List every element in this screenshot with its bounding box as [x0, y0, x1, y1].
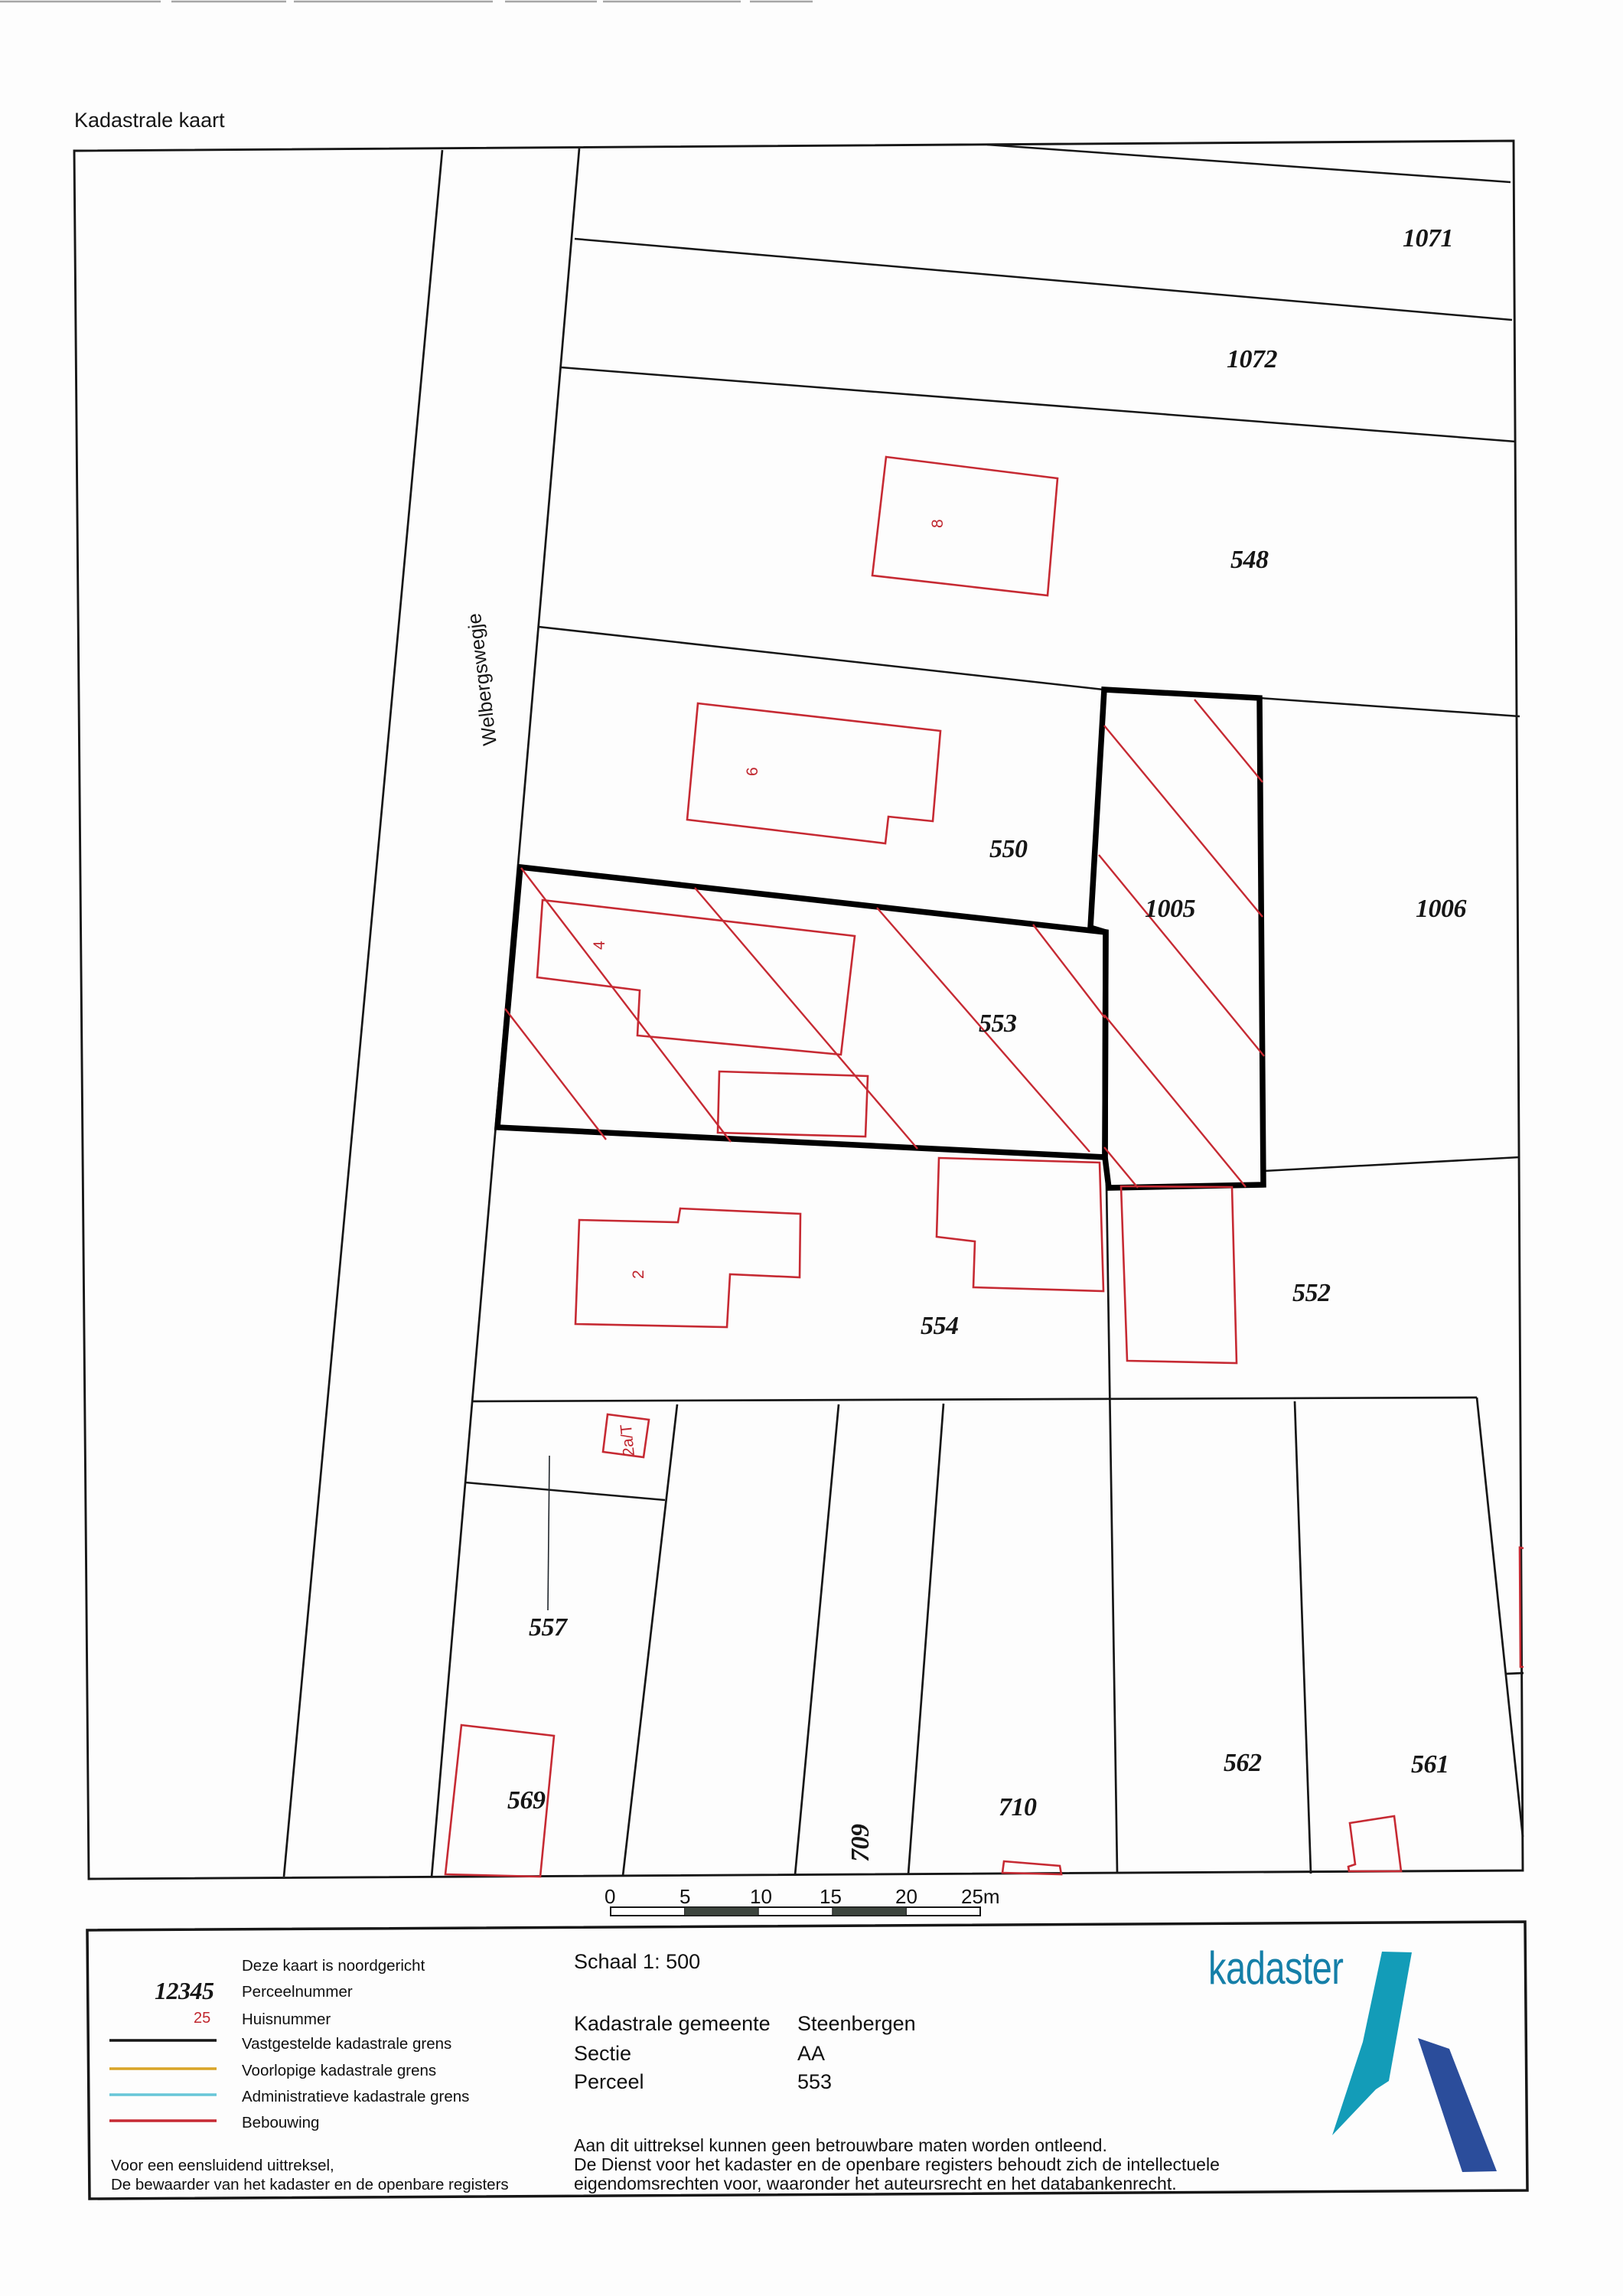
svg-text:Perceelnummer: Perceelnummer [242, 1983, 353, 2001]
svg-text:De Dienst voor het kadaster en: De Dienst voor het kadaster en de openba… [574, 2154, 1220, 2174]
svg-text:2: 2 [630, 1270, 647, 1279]
svg-text:548: 548 [1230, 546, 1269, 574]
svg-text:1005: 1005 [1145, 895, 1196, 923]
svg-text:569: 569 [507, 1786, 546, 1815]
svg-text:Welbergswegje: Welbergswegje [464, 612, 501, 747]
svg-text:kadaster: kadaster [1208, 1943, 1344, 1994]
svg-text:Kadastrale kaart: Kadastrale kaart [74, 109, 225, 132]
svg-text:1072: 1072 [1227, 345, 1278, 373]
svg-text:20: 20 [895, 1885, 917, 1908]
svg-text:Voorlopige kadastrale grens: Voorlopige kadastrale grens [242, 2062, 436, 2079]
svg-text:550: 550 [989, 835, 1028, 863]
svg-text:0: 0 [605, 1885, 615, 1908]
svg-text:4: 4 [591, 941, 608, 950]
svg-text:5: 5 [680, 1885, 690, 1908]
svg-text:De bewaarder van het kadaster: De bewaarder van het kadaster en de open… [111, 2176, 509, 2193]
svg-text:Steenbergen: Steenbergen [797, 2012, 916, 2035]
svg-text:Voor een eensluidend uittrekse: Voor een eensluidend uittreksel, [111, 2157, 334, 2174]
svg-text:Kadastrale gemeente: Kadastrale gemeente [574, 2012, 771, 2035]
svg-text:553: 553 [797, 2070, 832, 2093]
svg-text:2a/T: 2a/T [618, 1424, 638, 1457]
svg-text:Perceel: Perceel [574, 2070, 644, 2093]
svg-text:Administratieve kadastrale gre: Administratieve kadastrale grens [242, 2088, 469, 2105]
svg-text:1006: 1006 [1416, 895, 1467, 923]
svg-text:Deze kaart is noordgericht: Deze kaart is noordgericht [242, 1957, 425, 1975]
svg-text:557: 557 [529, 1613, 569, 1642]
svg-text:25: 25 [194, 2010, 210, 2027]
svg-text:562: 562 [1224, 1749, 1262, 1777]
svg-text:709: 709 [846, 1824, 875, 1862]
svg-text:Huisnummer: Huisnummer [242, 2011, 331, 2028]
svg-text:15: 15 [820, 1885, 842, 1908]
svg-text:710: 710 [999, 1793, 1037, 1821]
svg-text:561: 561 [1411, 1750, 1449, 1779]
svg-text:10: 10 [750, 1885, 772, 1908]
svg-text:12345: 12345 [155, 1977, 214, 2004]
svg-text:Vastgestelde kadastrale grens: Vastgestelde kadastrale grens [242, 2035, 451, 2053]
svg-text:Aan dit uittreksel kunnen geen: Aan dit uittreksel kunnen geen betrouwba… [574, 2135, 1107, 2155]
svg-text:AA: AA [797, 2042, 825, 2065]
svg-text:6: 6 [744, 767, 761, 776]
svg-text:Schaal 1: 500: Schaal 1: 500 [574, 1950, 700, 1973]
svg-text:8: 8 [929, 519, 947, 528]
svg-text:1071: 1071 [1403, 224, 1453, 253]
svg-text:25m: 25m [961, 1885, 1000, 1908]
svg-text:552: 552 [1292, 1279, 1331, 1307]
svg-text:eigendomsrechten voor, waarond: eigendomsrechten voor, waaronder het aut… [574, 2174, 1177, 2193]
svg-text:554: 554 [921, 1312, 959, 1340]
svg-text:Sectie: Sectie [574, 2042, 631, 2065]
svg-text:Bebouwing: Bebouwing [242, 2114, 319, 2131]
svg-text:553: 553 [979, 1009, 1017, 1038]
